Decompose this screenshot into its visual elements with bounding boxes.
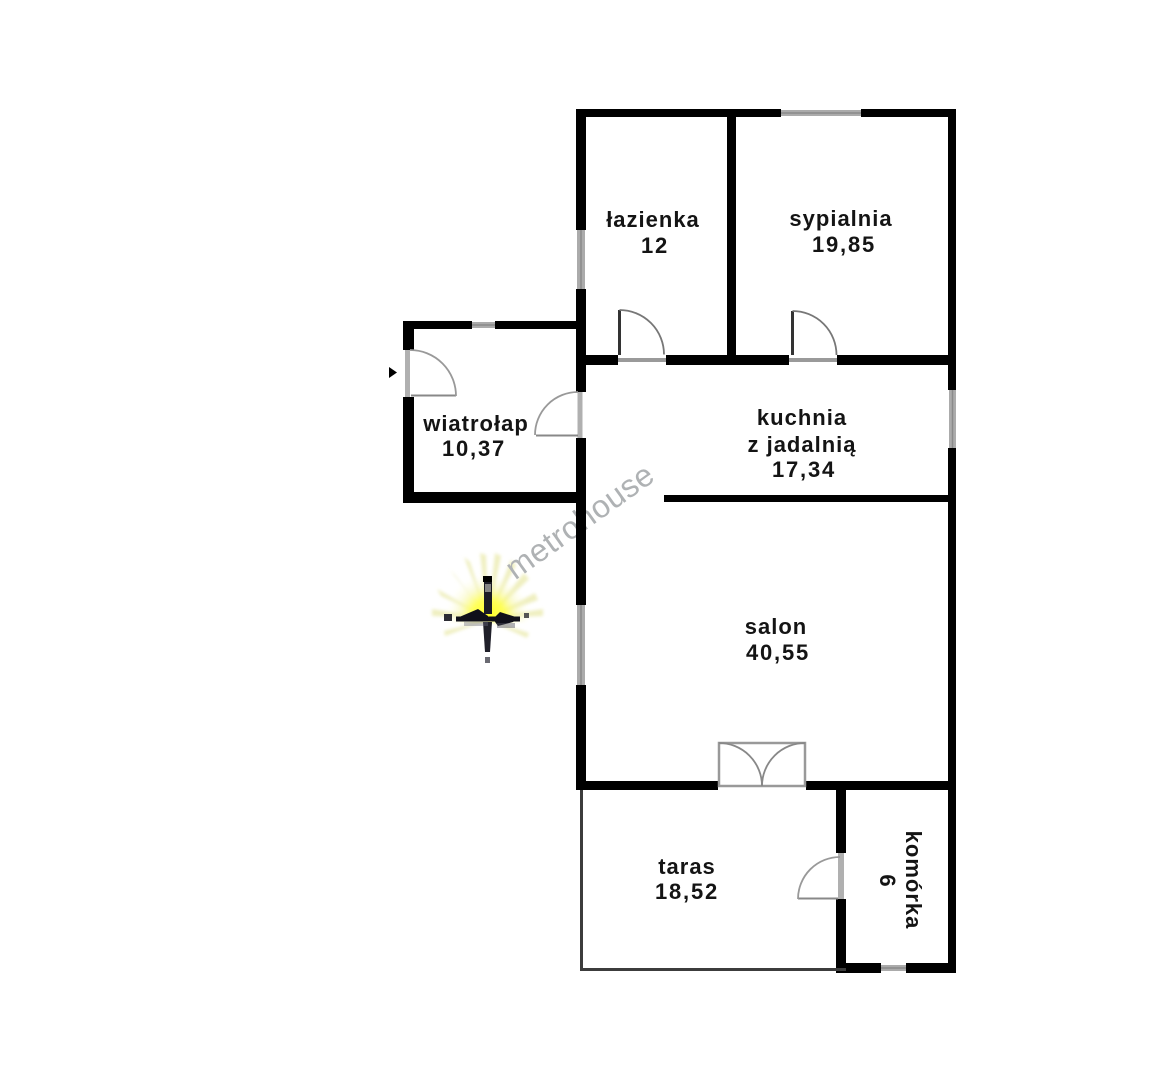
svg-text:z jadalnią: z jadalnią: [747, 432, 856, 457]
svg-text:6: 6: [875, 874, 900, 887]
svg-text:kuchnia: kuchnia: [757, 405, 847, 430]
svg-text:sypialnia: sypialnia: [789, 206, 892, 231]
svg-text:19,85: 19,85: [812, 232, 876, 257]
svg-text:łazienka: łazienka: [606, 207, 700, 232]
svg-text:taras: taras: [658, 854, 716, 879]
svg-text:salon: salon: [745, 614, 807, 639]
svg-text:40,55: 40,55: [746, 640, 810, 665]
svg-text:wiatrołap: wiatrołap: [422, 411, 529, 436]
svg-text:12: 12: [641, 233, 669, 258]
svg-text:17,34: 17,34: [772, 457, 836, 482]
svg-text:10,37: 10,37: [442, 436, 506, 461]
svg-text:komórka: komórka: [901, 831, 926, 930]
svg-text:18,52: 18,52: [655, 879, 719, 904]
